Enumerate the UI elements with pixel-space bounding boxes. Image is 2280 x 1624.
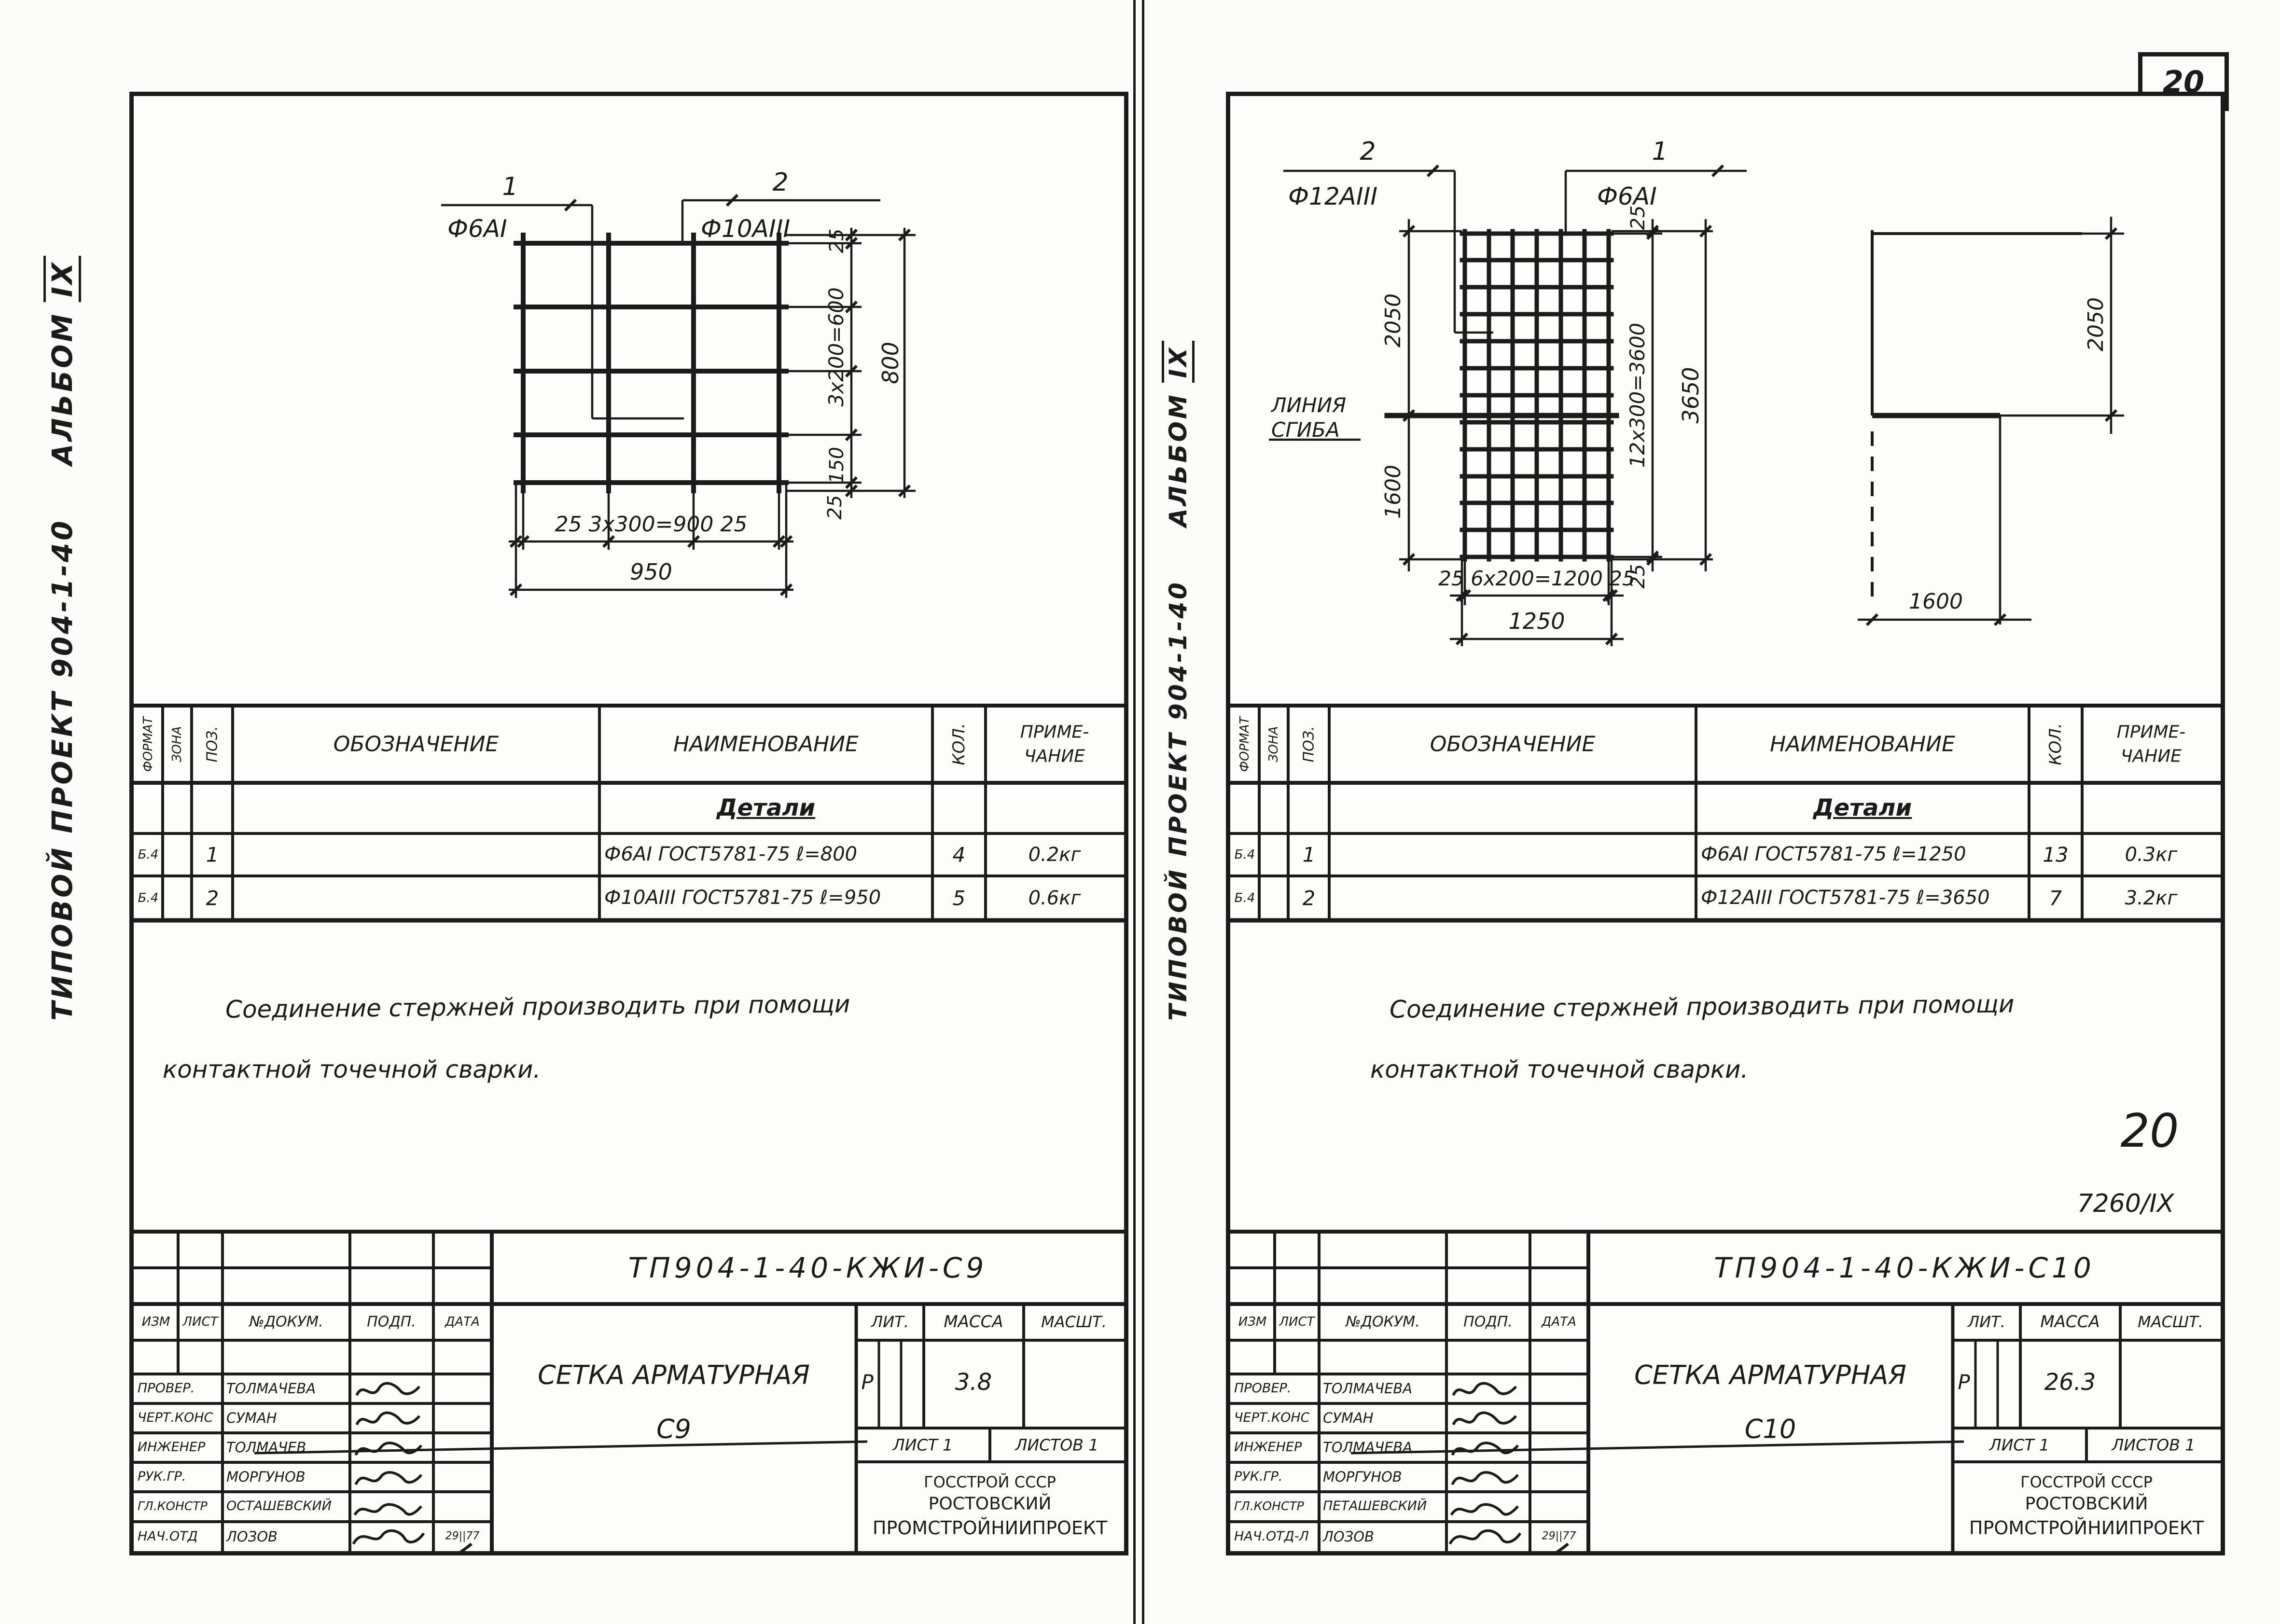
col-pos: ПОЗ. [1301,726,1318,763]
staff-name: СУМАН [1323,1410,1374,1426]
staff-role: НАЧ.ОТД [138,1529,198,1544]
row2-format: Б.4 [138,891,159,905]
row2-pos: 2 [206,887,219,910]
section-details: Детали [1813,794,1912,821]
col-zone: ЗОНА [170,726,184,762]
col-note-1: ПРИМЕ- [2117,722,2186,742]
sheet-title-2: С10 [1745,1414,1796,1444]
callout-1-number: 1 [502,172,518,201]
bend-line-label-2: СГИБА [1271,418,1340,442]
album-roman-numeral: IX [1162,341,1195,383]
sheet-title-2: С9 [656,1414,691,1444]
row1-qty: 4 [953,843,966,867]
row1-qty: 13 [2043,843,2068,867]
col-note-2: ЧАНИЕ [2121,747,2182,766]
side-caption-text: ТИПОВОЙ ПРОЕКТ 904-1-40 [46,518,79,1021]
tb-sheets: ЛИСТОВ 1 [1015,1436,1099,1455]
staff-name: ПЕТАШЕВСКИЙ [1323,1499,1427,1513]
dim-bottom-chain: 25 3x300=900 25 [555,512,748,537]
side-caption-right: ТИПОВОЙ ПРОЕКТ 904-1-40АЛЬБОМIX [1164,341,1192,1021]
doc-number: ТП904-1-40-КЖИ-С10 [1714,1251,2095,1284]
org-line-1: ГОССТРОЙ СССР [2020,1473,2153,1491]
col-qty: КОЛ. [2046,723,2065,765]
tb-lit: ЛИТ. [1968,1313,2005,1331]
staff-name: СУМАН [226,1410,277,1426]
callout-2-label: Ф12АIII [1288,182,1377,210]
sheet-page-number: 20 [2121,1105,2179,1158]
dim-800: 800 [877,342,904,384]
sheet-c9: 1 Ф6АI 2 Ф10АIII 25 3x200=600 150 25 800… [129,92,1128,1555]
row1-pos: 1 [206,843,219,867]
staff-role: РУК.ГР. [1234,1469,1282,1484]
row2-name: Ф12АIII ГОСТ5781-75 ℓ=3650 [1701,887,1990,909]
staff-name: ЛОЗОВ [226,1528,278,1545]
col-name: НАИМЕНОВАНИЕ [1770,732,1955,757]
row2-note: 3.2кг [2125,887,2178,909]
scanned-drawing-page: ТИПОВОЙ ПРОЕКТ 904-1-40АЛЬБОМIX ТИПОВОЙ … [0,0,2280,1624]
sheet-title-1: СЕТКА АРМАТУРНАЯ [538,1360,810,1390]
tb-list: ЛИСТ [1279,1315,1314,1329]
staff-role: ПРОВЕР. [1234,1381,1291,1396]
staff-name: ЛОЗОВ [1323,1528,1374,1545]
tb-lit: ЛИТ. [871,1313,909,1331]
row2-qty: 7 [2049,887,2062,910]
col-zone: ЗОНА [1266,726,1281,762]
col-note-1: ПРИМЕ- [1020,722,1089,742]
dim-150: 150 [826,447,848,484]
callout-2-number: 2 [1360,137,1376,166]
staff-role: ЧЕРТ.КОНС [1234,1410,1310,1425]
signature-marks [254,1383,867,1551]
col-designation: ОБОЗНАЧЕНИЕ [334,732,499,757]
dim-3x200: 3x200=600 [824,287,848,406]
tb-mass: МАССА [944,1312,1003,1332]
row1-pos: 1 [1303,843,1316,867]
tb-list: ЛИСТ [182,1315,218,1329]
tb-scale: МАСШТ. [1041,1313,1107,1331]
sheet-c10: 2 Ф12АIII 1 Ф6АI 2050 1600 ЛИНИЯ СГИБА 2… [1226,92,2225,1555]
dim-950: 950 [630,559,672,585]
archive-code: 7260/IX [2077,1189,2174,1218]
staff-role: ГЛ.КОНСТР [138,1499,208,1513]
tb-sheet: ЛИСТ 1 [1989,1436,2049,1455]
tb-mass: МАССА [2040,1312,2099,1332]
dim-bottom-chain: 25 6x200=1200 25 [1438,567,1635,590]
note-line-1: Соединение стержней производить при помо… [225,990,850,1023]
staff-name: ТОЛМАЧЕВ [226,1439,306,1456]
sheet-c9-graphics: 1 Ф6АI 2 Ф10АIII 25 3x200=600 150 25 800… [134,96,1124,1551]
profile-dim-2050: 2050 [2084,297,2108,351]
dim-25-top: 25 [1627,206,1649,230]
mass-value: 26.3 [2044,1369,2096,1396]
col-qty: КОЛ. [949,723,969,765]
org-line-2: РОСТОВСКИЙ [929,1494,1052,1514]
lit-value: Р [861,1371,873,1394]
row1-note: 0.2кг [1029,844,1081,866]
tb-izm: ИЗМ [142,1315,170,1329]
org-line-1: ГОССТРОЙ СССР [924,1473,1056,1491]
staff-name: ТОЛМАЧЕВА [1323,1439,1412,1456]
row2-format: Б.4 [1235,891,1255,905]
col-pos: ПОЗ. [204,726,221,763]
note-line-2: контактной точечной сварки. [1370,1055,1748,1083]
tb-podp: ПОДП. [1463,1314,1513,1331]
dim-25-top: 25 [826,229,848,253]
org-line-3: ПРОМСТРОЙНИИПРОЕКТ [1969,1517,2204,1539]
tb-podp: ПОДП. [367,1314,416,1331]
staff-role: ГЛ.КОНСТР [1234,1499,1304,1513]
side-caption-album: АЛЬБОМ [1164,392,1192,527]
gutter-line [1133,0,1136,1624]
side-caption-album: АЛЬБОМ [46,312,79,466]
staff-role: ПРОВЕР. [138,1381,195,1396]
profile-dim-1600: 1600 [1909,589,1963,614]
side-caption-text: ТИПОВОЙ ПРОЕКТ 904-1-40 [1164,580,1192,1021]
dim-12x300: 12x300=3600 [1626,323,1649,468]
album-roman-numeral: IX [43,256,81,302]
callout-1-number: 1 [1652,137,1668,166]
col-note-2: ЧАНИЕ [1024,747,1085,766]
callout-2-number: 2 [772,168,788,197]
callout-2-label: Ф10АIII [701,215,790,243]
org-line-3: ПРОМСТРОЙНИИПРОЕКТ [873,1517,1107,1539]
staff-name: МОРГУНОВ [226,1469,306,1485]
staff-name: ТОЛМАЧЕВА [1323,1380,1412,1397]
col-format: ФОРМАТ [1237,717,1252,772]
sign-date: 29||77 [445,1530,480,1542]
dim-25-bottom: 25 [824,495,846,520]
callout-1-label: Ф6АI [447,215,507,243]
tb-ndok: №ДОКУМ. [249,1314,323,1331]
note-line-2: контактной точечной сварки. [163,1055,541,1083]
sheet-c10-graphics: 2 Ф12АIII 1 Ф6АI 2050 1600 ЛИНИЯ СГИБА 2… [1230,96,2221,1551]
side-caption-left: ТИПОВОЙ ПРОЕКТ 904-1-40АЛЬБОМIX [46,256,79,1021]
sign-date: 29||77 [1542,1530,1576,1542]
note-line-1: Соединение стержней производить при помо… [1390,990,2015,1023]
row1-format: Б.4 [1235,847,1255,862]
staff-name: ОСТАШЕВСКИЙ [226,1499,332,1513]
signature-marks [1351,1383,1964,1551]
col-name: НАИМЕНОВАНИЕ [673,732,859,757]
tb-data: ДАТА [445,1315,480,1329]
tb-sheet: ЛИСТ 1 [893,1436,953,1455]
staff-role: ИНЖЕНЕР [138,1440,205,1455]
dim-1250: 1250 [1508,608,1565,634]
staff-name: ТОЛМАЧЕВА [226,1380,316,1397]
row1-name: Ф6АI ГОСТ5781-75 ℓ=1250 [1701,843,1966,865]
lit-value: Р [1958,1371,1970,1394]
staff-role: РУК.ГР. [138,1469,186,1484]
bend-line-label-1: ЛИНИЯ [1270,393,1346,417]
row1-format: Б.4 [138,847,159,862]
mesh-bars [1387,231,1616,559]
tb-scale: МАСШТ. [2138,1313,2203,1331]
row1-note: 0.3кг [2125,844,2178,866]
row2-qty: 5 [953,887,966,910]
tb-data: ДАТА [1542,1315,1576,1329]
staff-role: ИНЖЕНЕР [1234,1440,1302,1455]
staff-role: НАЧ.ОТД-Л [1234,1529,1309,1544]
row2-note: 0.6кг [1029,887,1081,909]
staff-role: ЧЕРТ.КОНС [138,1410,213,1425]
staff-name: МОРГУНОВ [1323,1469,1402,1485]
mass-value: 3.8 [955,1369,992,1396]
gutter-line [1142,0,1144,1624]
row2-pos: 2 [1303,887,1316,910]
tb-sheets: ЛИСТОВ 1 [2112,1436,2196,1455]
doc-number: ТП904-1-40-КЖИ-С9 [628,1251,988,1284]
sheet-title-1: СЕТКА АРМАТУРНАЯ [1634,1360,1906,1390]
section-details: Детали [717,794,815,821]
row1-name: Ф6АI ГОСТ5781-75 ℓ=800 [604,843,857,865]
mesh-bars [516,235,786,491]
tb-izm: ИЗМ [1238,1315,1267,1329]
row2-name: Ф10АIII ГОСТ5781-75 ℓ=950 [604,887,881,909]
tb-ndok: №ДОКУМ. [1346,1314,1419,1331]
dim-3650: 3650 [1678,367,1704,423]
dim-2050: 2050 [1381,293,1405,347]
org-line-2: РОСТОВСКИЙ [2025,1494,2148,1514]
col-format: ФОРМАТ [141,717,155,772]
col-designation: ОБОЗНАЧЕНИЕ [1430,732,1596,757]
dim-1600: 1600 [1381,465,1405,519]
